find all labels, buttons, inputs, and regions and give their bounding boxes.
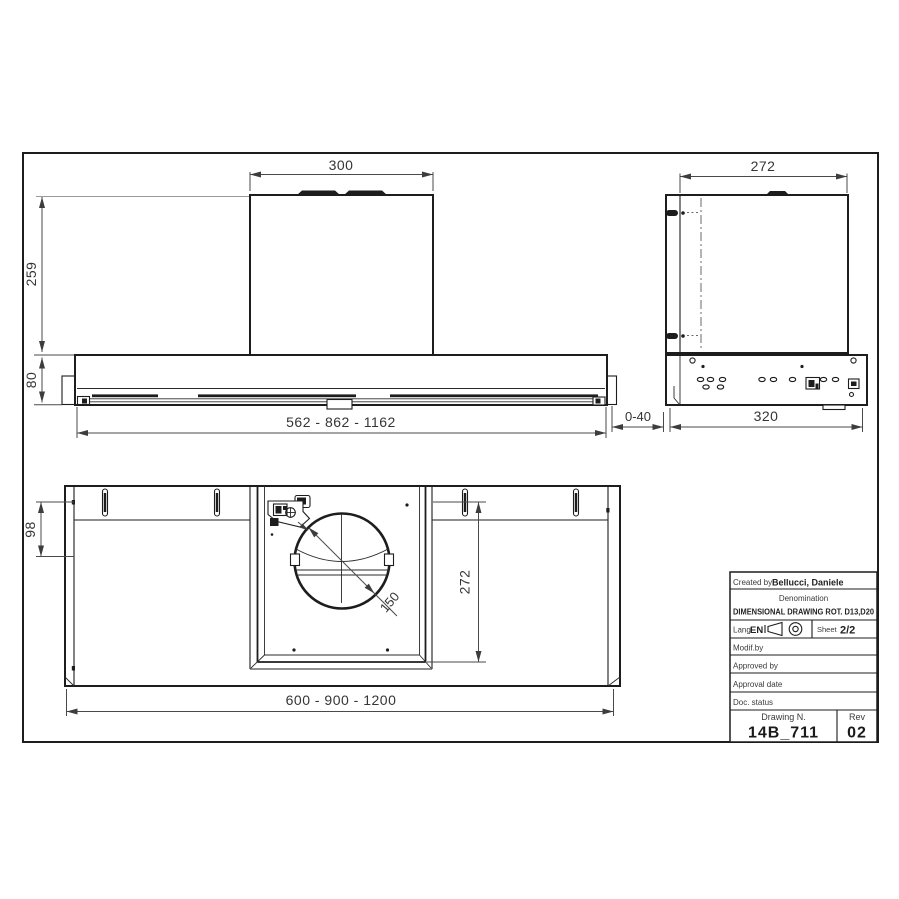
center-handle-tab [327,400,352,410]
approved-by-label: Approved by [733,662,778,671]
dim-label-320: 320 [754,408,779,424]
side-chimney-outline [666,195,848,353]
rev-label: Rev [849,712,866,722]
dim-side-depth: 320 [670,408,863,432]
title-block: Created by Bellucci, Daniele Denominatio… [730,572,877,742]
dim-body-height: 80 [23,358,62,405]
dim-bottom-widths: 600 - 900 - 1200 [67,689,614,716]
bottom-outline [65,486,620,686]
denomination-label: Denomination [779,594,828,603]
dim-side-top-width: 272 [680,158,847,193]
dim-chimney-width: 300 [250,157,433,191]
approval-date-label: Approval date [733,680,783,689]
front-view: 300 259 80 562 - 862 - 1162 [23,157,664,438]
wall-fixing-pin [666,333,678,339]
created-by-label: Created by [733,578,772,587]
hood-body-outline [75,355,607,405]
dim-label-272-side: 272 [751,158,776,174]
side-bottom-notch [823,405,845,410]
chimney-top-tab [297,191,340,196]
side-body-outline [666,355,867,405]
bottom-view: 150 98 [22,486,620,716]
sheet-label: Sheet [817,625,838,634]
dim-label-bottom-widths: 600 - 900 - 1200 [286,692,397,708]
drawing-number-value: 14B_711 [748,725,819,742]
dim-label-259: 259 [23,262,39,287]
dim-label-300: 300 [329,157,354,173]
dim-label-80: 80 [23,372,39,389]
dim-label-98: 98 [22,521,38,538]
created-by-value: Bellucci, Daniele [772,578,844,588]
doc-status-label: Doc. status [733,698,773,707]
rev-value: 02 [847,725,867,742]
dim-label-272-bottom: 272 [457,570,473,595]
dim-label-widths: 562 - 862 - 1162 [286,414,396,430]
left-wall-bracket [62,376,75,405]
dim-chimney-height: 259 [23,197,74,355]
sheet-value: 2/2 [840,625,855,637]
lang-label: Lang [733,626,751,635]
drawing-number-label: Drawing N. [761,712,806,722]
dim-wall-gap: 0-40 [612,406,664,432]
side-top-tab [766,191,789,195]
dim-label-gap: 0-40 [625,409,651,424]
dim-body-widths: 562 - 862 - 1162 [77,407,606,438]
denomination-value: DIMENSIONAL DRAWING ROT. D13,D20 [733,608,875,617]
right-wall-bracket [607,376,617,405]
wall-fixing-pin [666,210,678,216]
dimensional-drawing-sheet: 300 259 80 562 - 862 - 1162 [0,0,899,899]
chimney-top-tab [344,191,387,196]
modif-by-label: Modif.by [733,644,763,653]
chimney-outline [250,195,433,355]
lang-value: EN [750,625,763,636]
side-view: 272 320 [666,158,867,432]
